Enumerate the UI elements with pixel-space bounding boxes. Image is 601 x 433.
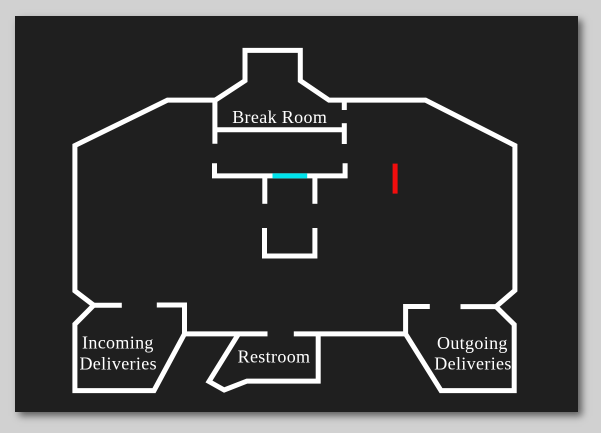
svg-text:Restroom: Restroom (238, 347, 311, 367)
svg-text:Deliveries: Deliveries (434, 354, 511, 374)
svg-text:Incoming: Incoming (82, 333, 154, 353)
svg-text:Break Room: Break Room (232, 107, 327, 127)
svg-text:Outgoing: Outgoing (437, 333, 508, 353)
svg-text:Deliveries: Deliveries (79, 354, 156, 374)
